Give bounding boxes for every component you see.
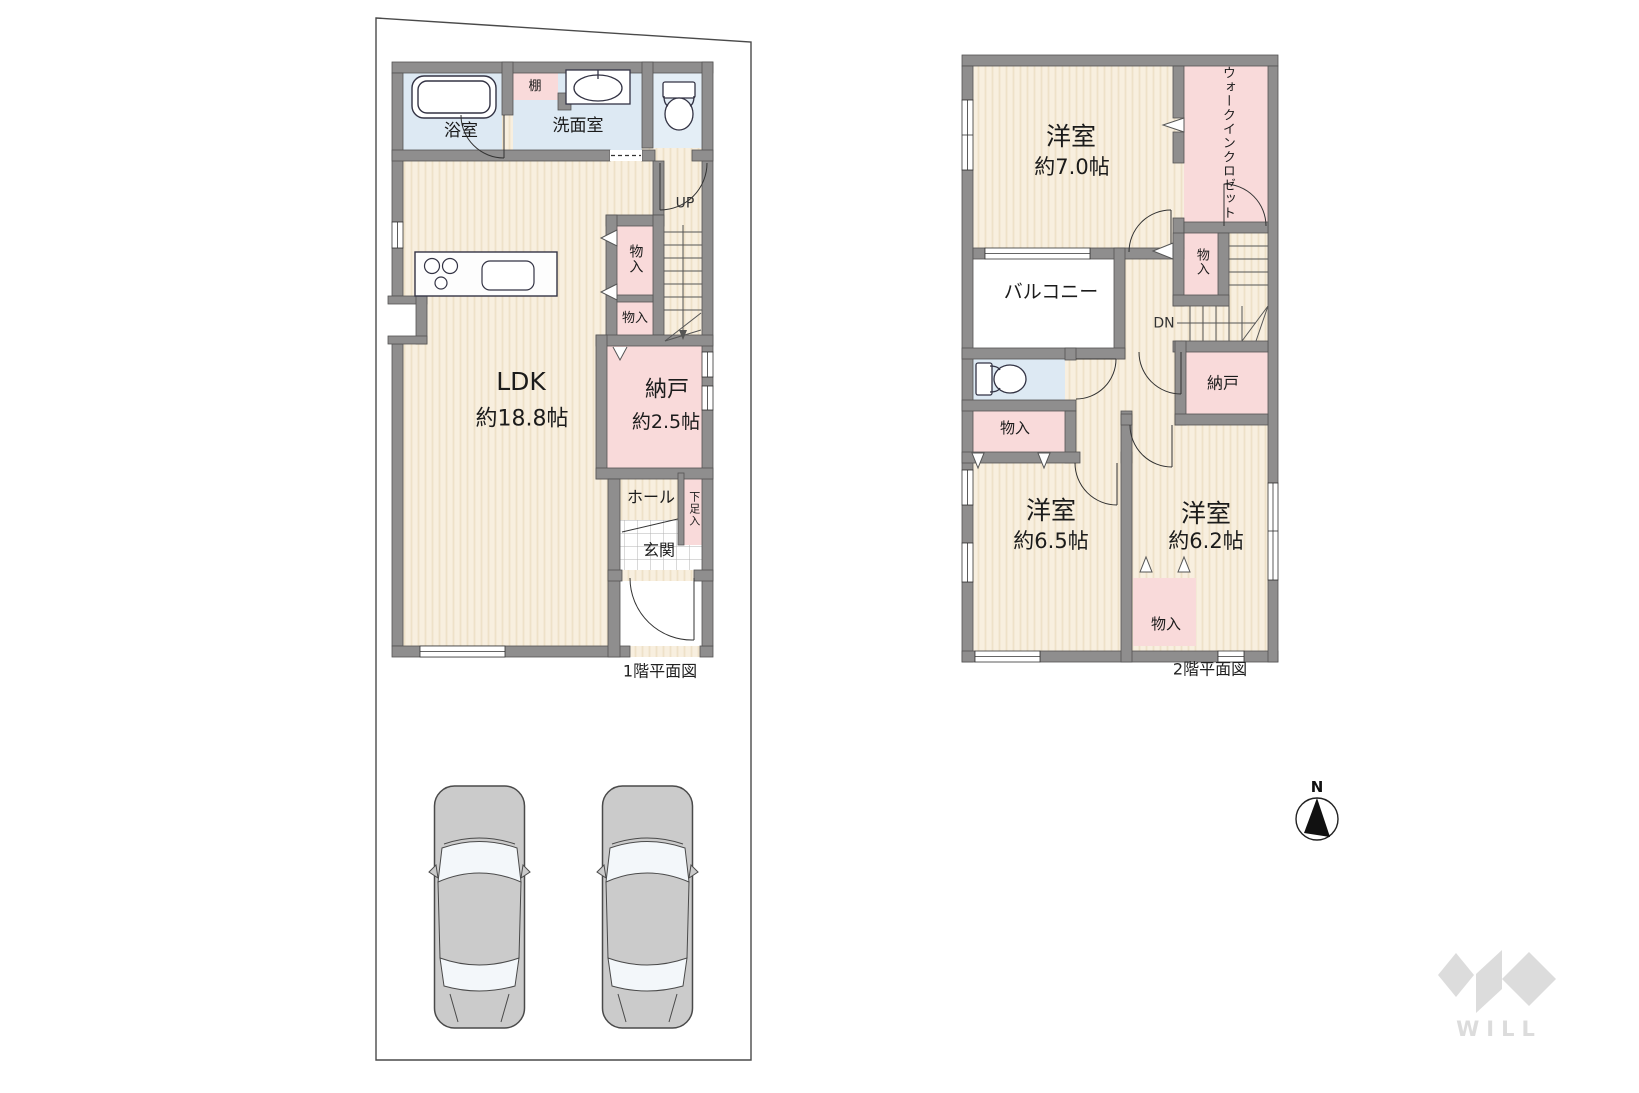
room-label-washroom: 洗面室 bbox=[553, 118, 604, 136]
closet-label: 物入 bbox=[1000, 421, 1030, 437]
car-icon bbox=[597, 786, 698, 1028]
room-area-bedroom2: 約6.5帖 bbox=[1013, 530, 1088, 552]
room-area-bedroom1: 約7.0帖 bbox=[1034, 156, 1109, 178]
floorplan-page: 浴室 棚 洗面室 UP 物入 物入 LDK 約18.8帖 納戸 約2.5帖 ホー… bbox=[0, 0, 1639, 1093]
room-area-storeroom: 約2.5帖 bbox=[632, 413, 700, 433]
storeroom-1f bbox=[607, 346, 702, 468]
closet-label: 物入 bbox=[1151, 617, 1181, 633]
sink-icon bbox=[566, 70, 630, 104]
floor1-caption: 1階平面図 bbox=[623, 664, 697, 681]
stairs-up-label: UP bbox=[676, 197, 695, 212]
room-label-wic: ウォークイン クロゼット bbox=[1220, 66, 1234, 220]
room-label-bedroom1: 洋室 bbox=[1046, 124, 1096, 150]
room-label-shelf: 棚 bbox=[528, 80, 541, 94]
room-label-shoe-closet: 下足入 bbox=[688, 491, 700, 527]
porch bbox=[620, 581, 702, 646]
closet-bottom bbox=[1133, 578, 1196, 646]
room-label-balcony: バルコニー bbox=[1004, 283, 1099, 303]
room-label-bedroom3: 洋室 bbox=[1181, 501, 1231, 527]
wic-line1: ウォークイン bbox=[1220, 66, 1234, 150]
room-label-entrance: 玄関 bbox=[643, 543, 675, 560]
balcony-floor bbox=[973, 259, 1114, 348]
compass-north-label: N bbox=[1311, 780, 1324, 796]
bathtub-icon bbox=[412, 76, 496, 118]
toilet-icon bbox=[976, 363, 1026, 395]
closet-label: 物入 bbox=[622, 312, 648, 326]
floor1-plan bbox=[388, 62, 713, 657]
car-icon bbox=[429, 786, 530, 1028]
will-logo-text: WILL bbox=[1456, 1018, 1542, 1040]
stairs-down-label: DN bbox=[1153, 317, 1174, 332]
stove-icon bbox=[415, 252, 557, 296]
toilet-icon bbox=[663, 82, 695, 130]
room-label-storeroom2: 納戸 bbox=[1207, 376, 1239, 393]
closet-label: 物入 bbox=[1194, 248, 1208, 276]
closet-label: 物入 bbox=[628, 244, 643, 274]
room-label-storeroom: 納戸 bbox=[645, 378, 689, 401]
floorplan-graphics bbox=[0, 0, 1639, 1093]
compass-icon bbox=[1296, 798, 1338, 840]
room-label-hall: ホール bbox=[627, 490, 675, 507]
room-area-ldk: 約18.8帖 bbox=[476, 407, 569, 430]
room-area-bedroom3: 約6.2帖 bbox=[1168, 530, 1243, 552]
wic-line2: クロゼット bbox=[1220, 150, 1234, 220]
will-logo-icon bbox=[1438, 950, 1556, 1013]
kitchen-sink-icon bbox=[482, 261, 534, 290]
room-label-bath: 浴室 bbox=[444, 123, 478, 141]
room-label-ldk: LDK bbox=[496, 369, 546, 395]
room-label-bedroom2: 洋室 bbox=[1026, 498, 1076, 524]
floor2-caption: 2階平面図 bbox=[1173, 662, 1247, 679]
